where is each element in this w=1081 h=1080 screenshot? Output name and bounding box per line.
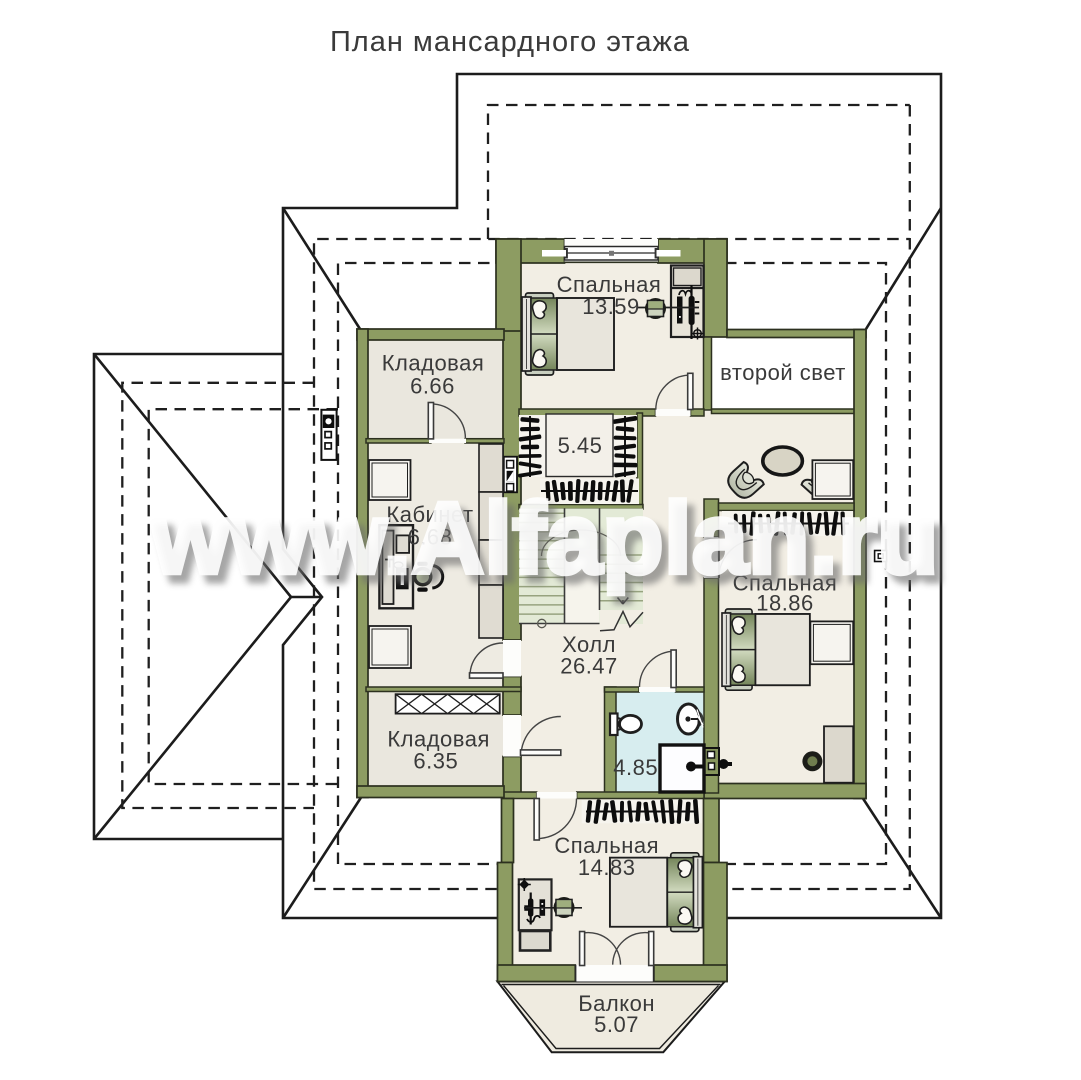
svg-text:5.45: 5.45	[558, 433, 603, 458]
svg-text:14.83: 14.83	[578, 855, 636, 880]
svg-text:5.07: 5.07	[594, 1012, 639, 1037]
svg-text:4.85: 4.85	[613, 755, 658, 780]
svg-text:6.35: 6.35	[413, 749, 458, 774]
svg-text:13.59: 13.59	[582, 294, 640, 319]
svg-text:Кладовая: Кладовая	[382, 351, 485, 376]
svg-text:26.47: 26.47	[560, 654, 618, 679]
svg-text:www.Alfaplan.ru: www.Alfaplan.ru	[150, 483, 938, 595]
svg-text:6.66: 6.66	[410, 374, 455, 399]
svg-text:План мансардного этажа: План мансардного этажа	[330, 26, 690, 58]
svg-text:второй свет: второй свет	[720, 360, 846, 385]
